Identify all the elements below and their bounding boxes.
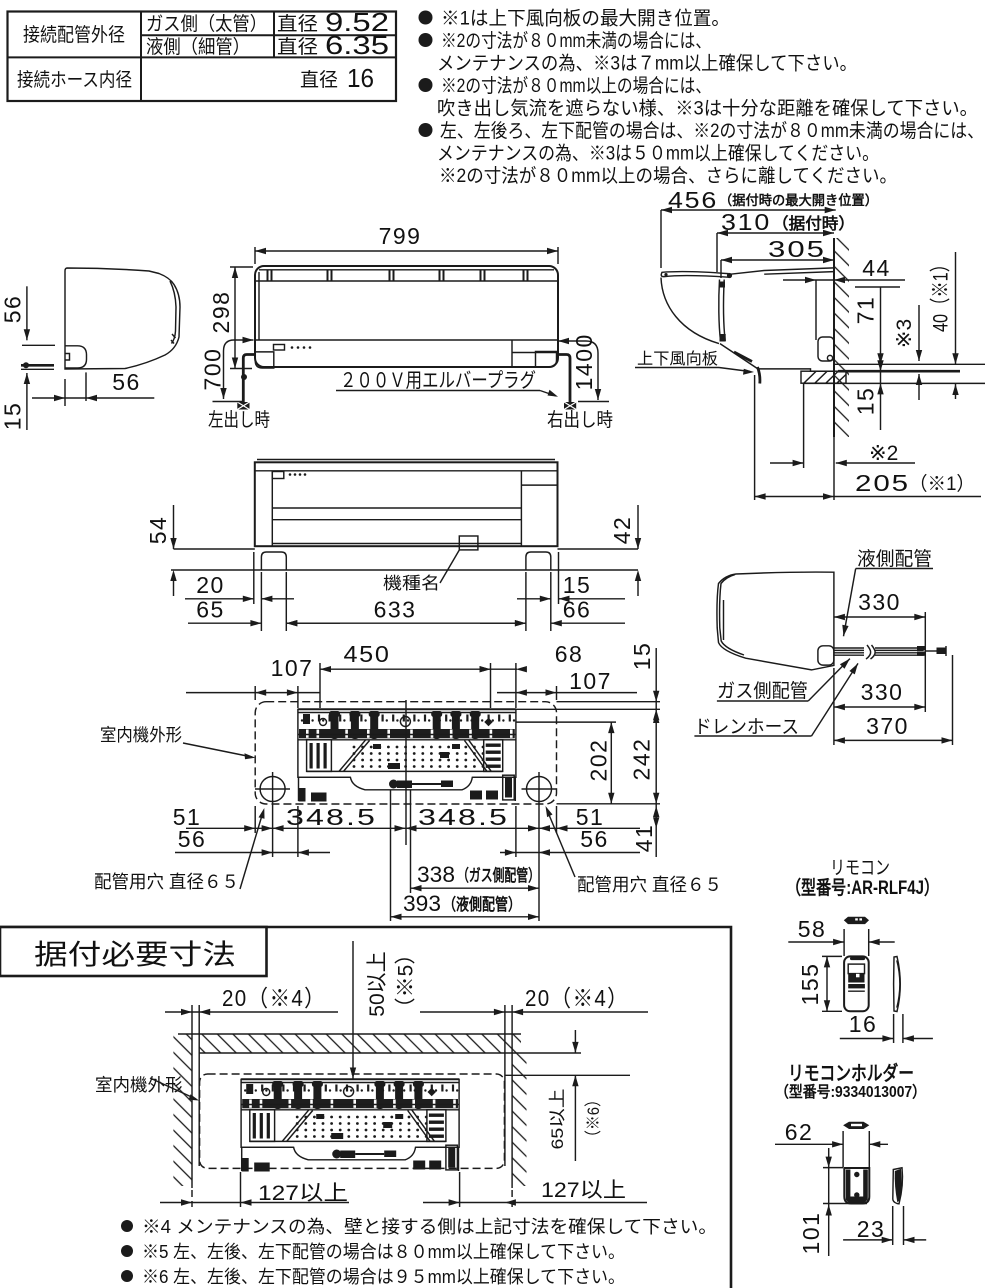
svg-text:メンテナンスの為、※3は７mm以上確保して下さい。: メンテナンスの為、※3は７mm以上確保して下さい。	[437, 53, 857, 75]
svg-text:68: 68	[555, 641, 584, 667]
svg-text:２００Ｖ用エルバープラグ: ２００Ｖ用エルバープラグ	[340, 369, 536, 392]
svg-text:15: 15	[629, 642, 655, 671]
svg-text:348.5: 348.5	[286, 804, 377, 830]
svg-text:※1は上下風向板の最大開き位置。: ※1は上下風向板の最大開き位置。	[441, 8, 730, 30]
svg-text:338: 338	[417, 862, 455, 887]
svg-text:室内機外形: 室内機外形	[100, 725, 182, 745]
svg-text:700: 700	[200, 348, 226, 391]
svg-text:（型番号:9334013007）: （型番号:9334013007）	[775, 1082, 926, 1101]
svg-text:（※5）: （※5）	[395, 944, 418, 1019]
svg-text:20: 20	[196, 572, 225, 598]
svg-text:※5 左、左後、左下配管の場合は８０mm以上確保して下さい。: ※5 左、左後、左下配管の場合は８０mm以上確保して下さい。	[142, 1242, 625, 1262]
svg-text:据付必要寸法: 据付必要寸法	[34, 939, 236, 970]
svg-text:上下風向板: 上下風向板	[637, 350, 718, 368]
svg-text:107: 107	[569, 668, 612, 694]
svg-text:配管用穴 直径６５: 配管用穴 直径６５	[577, 875, 722, 895]
svg-text:44: 44	[862, 255, 891, 281]
svg-text:155: 155	[797, 963, 823, 1006]
svg-text:※3: ※3	[893, 319, 916, 348]
svg-text:※2の寸法が８０mm未満の場合には、: ※2の寸法が８０mm未満の場合には、	[441, 30, 711, 52]
svg-text:※2の寸法が８０mm以上の場合には、: ※2の寸法が８０mm以上の場合には、	[441, 75, 711, 97]
svg-text:左、左後ろ、左下配管の場合は、※2の寸法が８０mm未満の場合: 左、左後ろ、左下配管の場合は、※2の寸法が８０mm未満の場合には、	[440, 120, 984, 142]
svg-text:左出し時: 左出し時	[208, 409, 270, 431]
svg-text:吹き出し気流を遮らない様、※3は十分な距離を確保して下さい。: 吹き出し気流を遮らない様、※3は十分な距離を確保して下さい。	[437, 98, 978, 120]
svg-text:56: 56	[178, 826, 207, 852]
svg-text:リモコンホルダー: リモコンホルダー	[788, 1061, 914, 1085]
svg-text:58: 58	[798, 916, 827, 942]
svg-text:71: 71	[853, 296, 879, 325]
svg-text:※4 メンテナンスの為、壁と接する側は上記寸法を確保して下さ: ※4 メンテナンスの為、壁と接する側は上記寸法を確保して下さい。	[142, 1217, 717, 1237]
svg-text:ガス側（太管）: ガス側（太管）	[146, 13, 267, 35]
svg-text:65以上: 65以上	[548, 1089, 567, 1150]
svg-text:330: 330	[861, 679, 904, 705]
svg-text:15: 15	[563, 572, 592, 598]
svg-text:42: 42	[609, 516, 635, 545]
svg-text:15: 15	[0, 402, 26, 431]
svg-text:6.35: 6.35	[325, 30, 389, 60]
svg-text:16: 16	[347, 63, 374, 93]
svg-text:直径: 直径	[300, 69, 338, 91]
svg-text:ドレンホース: ドレンホース	[694, 717, 799, 738]
svg-text:※6 左、左後、左下配管の場合は９５mm以上確保して下さい。: ※6 左、左後、左下配管の場合は９５mm以上確保して下さい。	[142, 1267, 625, 1287]
svg-text:リモコン: リモコン	[830, 858, 890, 879]
svg-text:機種名: 機種名	[383, 574, 440, 593]
svg-text:127以上: 127以上	[541, 1179, 626, 1202]
svg-text:※2の寸法が８０mm以上の場合、さらに離してください。: ※2の寸法が８０mm以上の場合、さらに離してください。	[439, 165, 897, 187]
svg-text:（型番号:AR-RLF4J）: （型番号:AR-RLF4J）	[786, 876, 939, 899]
svg-text:20（※4）: 20（※4）	[525, 985, 629, 1011]
svg-text:242: 242	[629, 738, 655, 781]
svg-text:（※6）: （※6）	[584, 1092, 603, 1145]
svg-text:633: 633	[374, 597, 417, 623]
svg-text:（据付時）: （据付時）	[772, 214, 855, 233]
svg-text:62: 62	[785, 1119, 814, 1145]
svg-text:液側（細管）: 液側（細管）	[146, 36, 250, 58]
svg-text:298: 298	[208, 291, 234, 334]
svg-text:接続配管外径: 接続配管外径	[23, 24, 125, 46]
svg-text:202: 202	[586, 739, 612, 782]
svg-text:101: 101	[798, 1212, 824, 1255]
svg-text:40（※1）: 40（※1）	[930, 256, 953, 332]
svg-text:直径: 直径	[277, 13, 318, 35]
svg-text:（※1）: （※1）	[909, 473, 975, 495]
svg-text:直径: 直径	[277, 36, 318, 58]
svg-text:305: 305	[768, 236, 826, 262]
svg-text:23: 23	[857, 1216, 886, 1242]
svg-text:370: 370	[866, 713, 909, 739]
svg-text:65: 65	[196, 597, 225, 623]
svg-text:（据付時の最大開き位置）: （据付時の最大開き位置）	[719, 192, 878, 208]
svg-text:（液側配管）: （液側配管）	[443, 894, 521, 914]
svg-text:56: 56	[0, 295, 26, 324]
svg-text:ガス側配管: ガス側配管	[717, 680, 808, 702]
svg-text:メンテナンスの為、※3は５０mm以上確保してください。: メンテナンスの為、※3は５０mm以上確保してください。	[437, 143, 879, 165]
svg-text:56: 56	[112, 369, 141, 395]
svg-text:450: 450	[344, 641, 391, 667]
svg-text:330: 330	[858, 589, 901, 615]
svg-text:接続ホース内径: 接続ホース内径	[17, 69, 132, 91]
svg-text:348.5: 348.5	[418, 804, 509, 830]
svg-text:室内機外形: 室内機外形	[95, 1075, 183, 1095]
svg-text:液側配管: 液側配管	[857, 548, 932, 570]
svg-text:799: 799	[379, 223, 422, 249]
svg-text:66: 66	[563, 597, 592, 623]
svg-text:右出し時: 右出し時	[547, 409, 613, 431]
svg-text:50以上: 50以上	[366, 951, 389, 1016]
svg-text:配管用穴 直径６５: 配管用穴 直径６５	[94, 872, 239, 892]
svg-text:16: 16	[849, 1011, 878, 1037]
svg-text:393: 393	[403, 891, 441, 916]
svg-text:456: 456	[668, 187, 718, 213]
svg-text:127以上: 127以上	[258, 1182, 348, 1205]
svg-text:20（※4）: 20（※4）	[222, 985, 326, 1011]
svg-text:1400: 1400	[571, 333, 597, 390]
svg-text:310: 310	[721, 209, 771, 235]
svg-text:54: 54	[145, 516, 171, 545]
svg-text:15: 15	[853, 387, 879, 416]
svg-text:56: 56	[580, 826, 609, 852]
svg-text:※2: ※2	[869, 442, 898, 465]
svg-text:107: 107	[271, 655, 314, 681]
svg-text:（ガス側配管）: （ガス側配管）	[457, 865, 540, 885]
svg-text:205: 205	[855, 470, 910, 496]
